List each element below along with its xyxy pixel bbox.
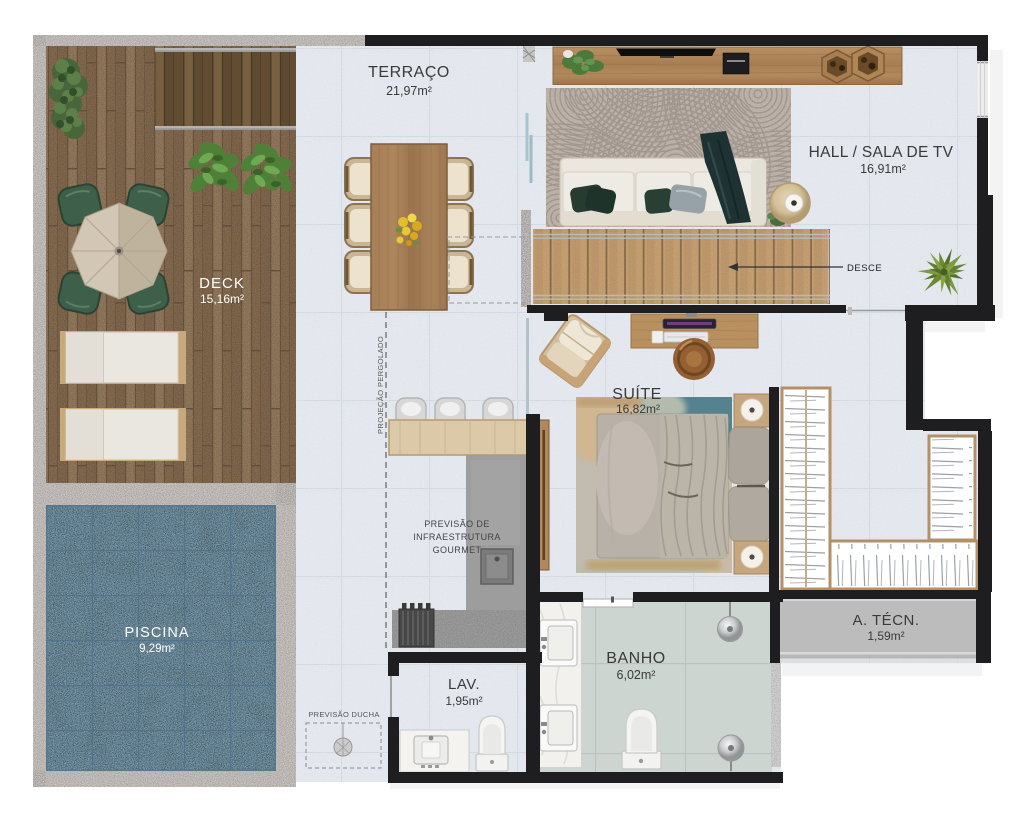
svg-text:16,91m²: 16,91m²	[860, 162, 906, 176]
svg-text:1,95m²: 1,95m²	[445, 694, 482, 708]
svg-text:PREVISÃO DE: PREVISÃO DE	[424, 519, 489, 529]
svg-text:6,02m²: 6,02m²	[617, 668, 656, 682]
svg-text:TERRAÇO: TERRAÇO	[368, 64, 450, 81]
svg-text:PISCINA: PISCINA	[124, 625, 189, 641]
svg-text:PROJEÇÃO PERGOLADO: PROJEÇÃO PERGOLADO	[376, 336, 385, 434]
svg-text:GOURMET: GOURMET	[433, 545, 482, 555]
svg-text:DESCE: DESCE	[847, 263, 882, 274]
svg-text:1,59m²: 1,59m²	[867, 629, 904, 643]
svg-text:LAV.: LAV.	[448, 676, 480, 693]
svg-text:SUÍTE: SUÍTE	[612, 384, 662, 403]
svg-text:15,16m²: 15,16m²	[200, 292, 244, 306]
svg-text:BANHO: BANHO	[606, 650, 665, 667]
svg-text:DECK: DECK	[199, 275, 245, 292]
svg-text:9,29m²: 9,29m²	[139, 643, 175, 655]
svg-text:21,97m²: 21,97m²	[386, 84, 432, 98]
svg-text:A. TÉCN.: A. TÉCN.	[852, 612, 919, 629]
svg-text:16,82m²: 16,82m²	[616, 402, 660, 416]
svg-text:HALL / SALA DE TV: HALL / SALA DE TV	[809, 144, 954, 161]
svg-text:PREVISÃO DUCHA: PREVISÃO DUCHA	[308, 710, 379, 719]
svg-text:INFRAESTRUTURA: INFRAESTRUTURA	[413, 532, 501, 542]
